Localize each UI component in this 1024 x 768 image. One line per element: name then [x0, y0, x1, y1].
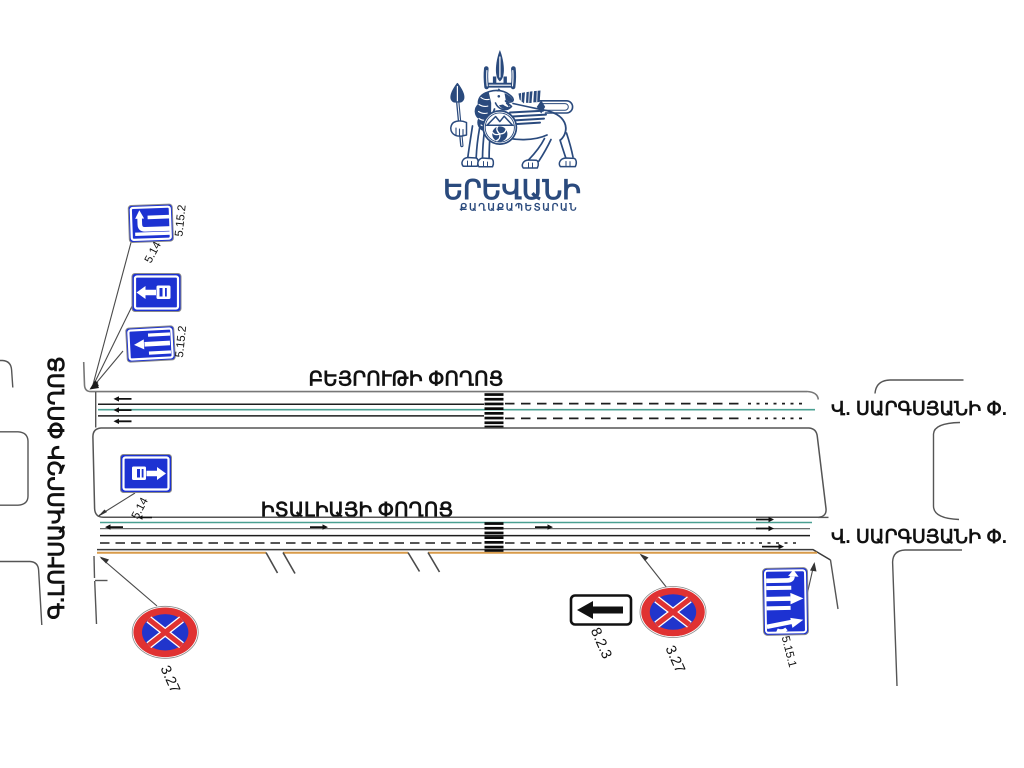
svg-text:ՔԱՂԱՔԱՊԵՏԱՐԱՆ: ՔԱՂԱՔԱՊԵՏԱՐԱՆ: [460, 203, 578, 214]
svg-text:ԲԵՅՐՈՒԹԻ ՓՈՂՈՑ: ԲԵՅՐՈՒԹԻ ՓՈՂՈՑ: [308, 369, 503, 391]
svg-text:Գ.ԼՈՒՍԱՎՈՐՉԻ ՓՈՂՈՑ: Գ.ԼՈՒՍԱՎՈՐՉԻ ՓՈՂՈՑ: [44, 356, 69, 619]
svg-text:ԻՏԱԼԻԱՅԻ ՓՈՂՈՑ: ԻՏԱԼԻԱՅԻ ՓՈՂՈՑ: [261, 500, 453, 522]
svg-text:Վ. ՍԱՐԳՍՅԱՆԻ Փ.: Վ. ՍԱՐԳՍՅԱՆԻ Փ.: [831, 527, 1007, 548]
svg-text:Վ. ՍԱՐԳՍՅԱՆԻ Փ.: Վ. ՍԱՐԳՍՅԱՆԻ Փ.: [831, 399, 1007, 420]
svg-text:ԵՐԵՎԱՆԻ: ԵՐԵՎԱՆԻ: [443, 175, 581, 205]
